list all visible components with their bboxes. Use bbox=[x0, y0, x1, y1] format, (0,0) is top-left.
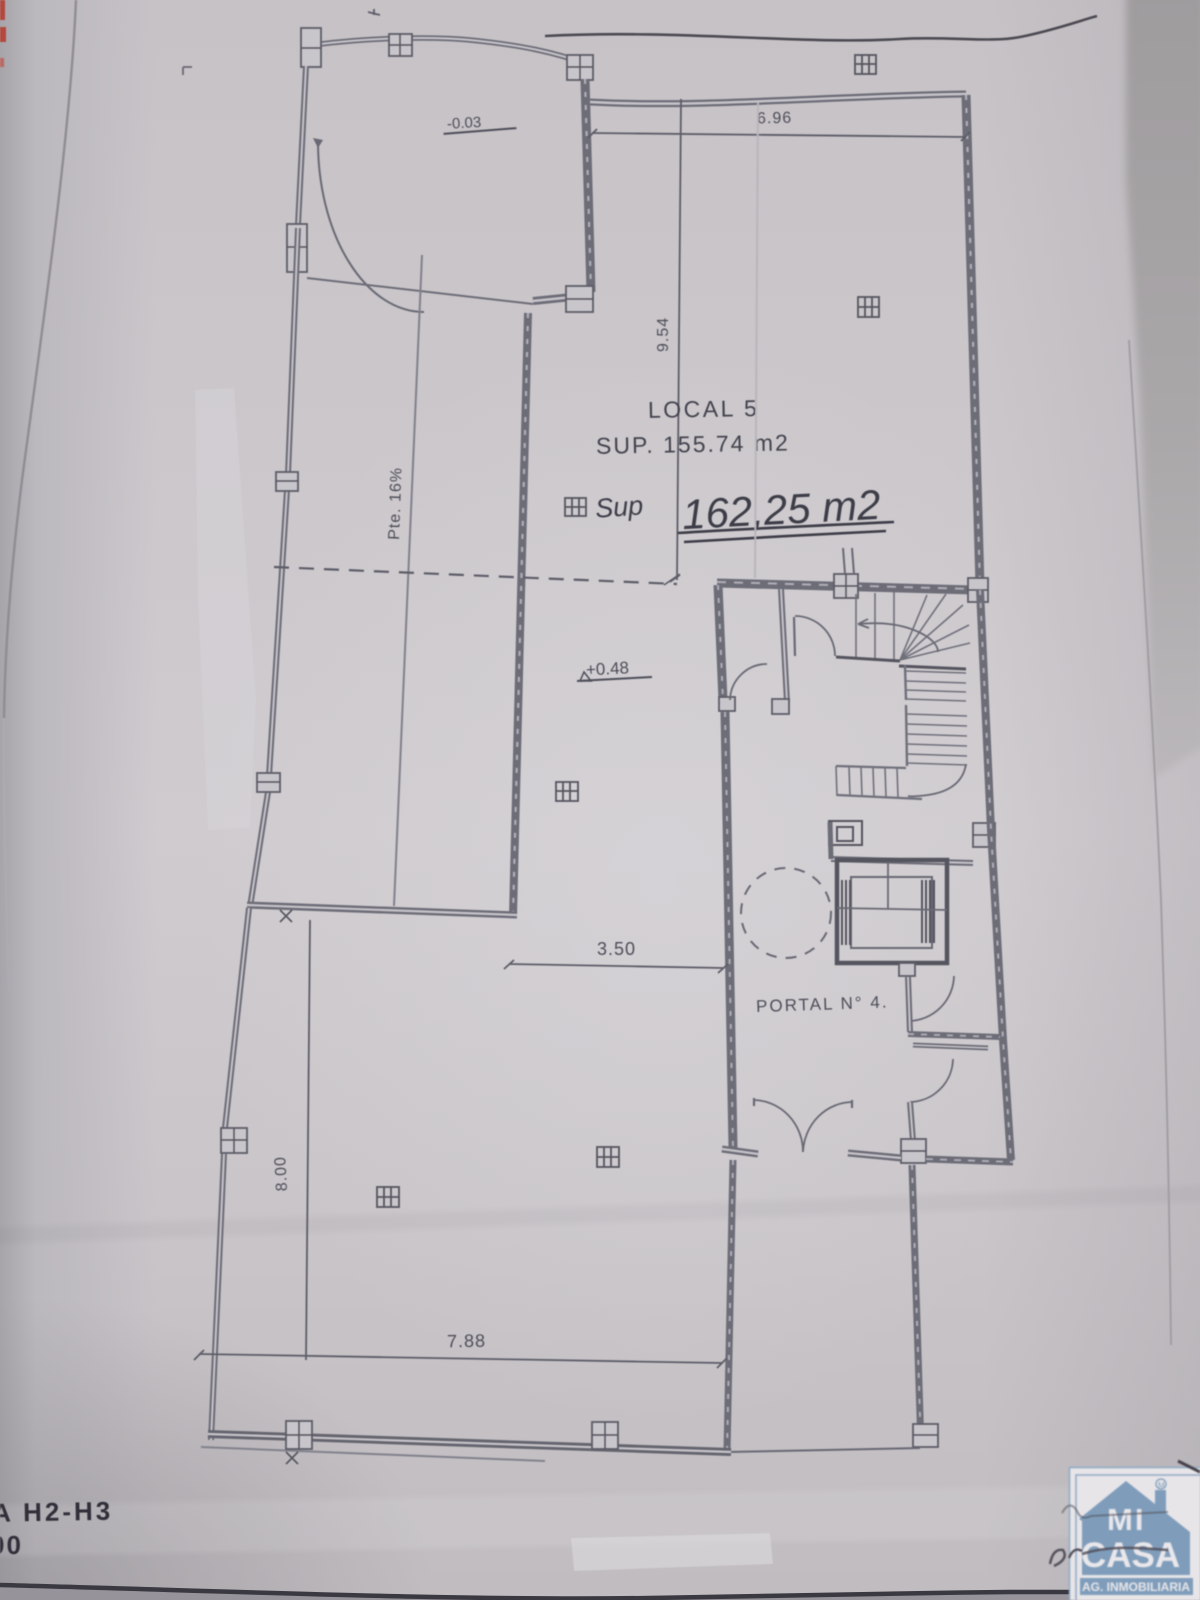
svg-text:CASA: CASA bbox=[1081, 1536, 1180, 1575]
svg-text:AG. INMOBILIARIA: AG. INMOBILIARIA bbox=[1082, 1580, 1190, 1594]
svg-text:M: M bbox=[1158, 1481, 1165, 1490]
svg-text:MI: MI bbox=[1107, 1502, 1145, 1537]
